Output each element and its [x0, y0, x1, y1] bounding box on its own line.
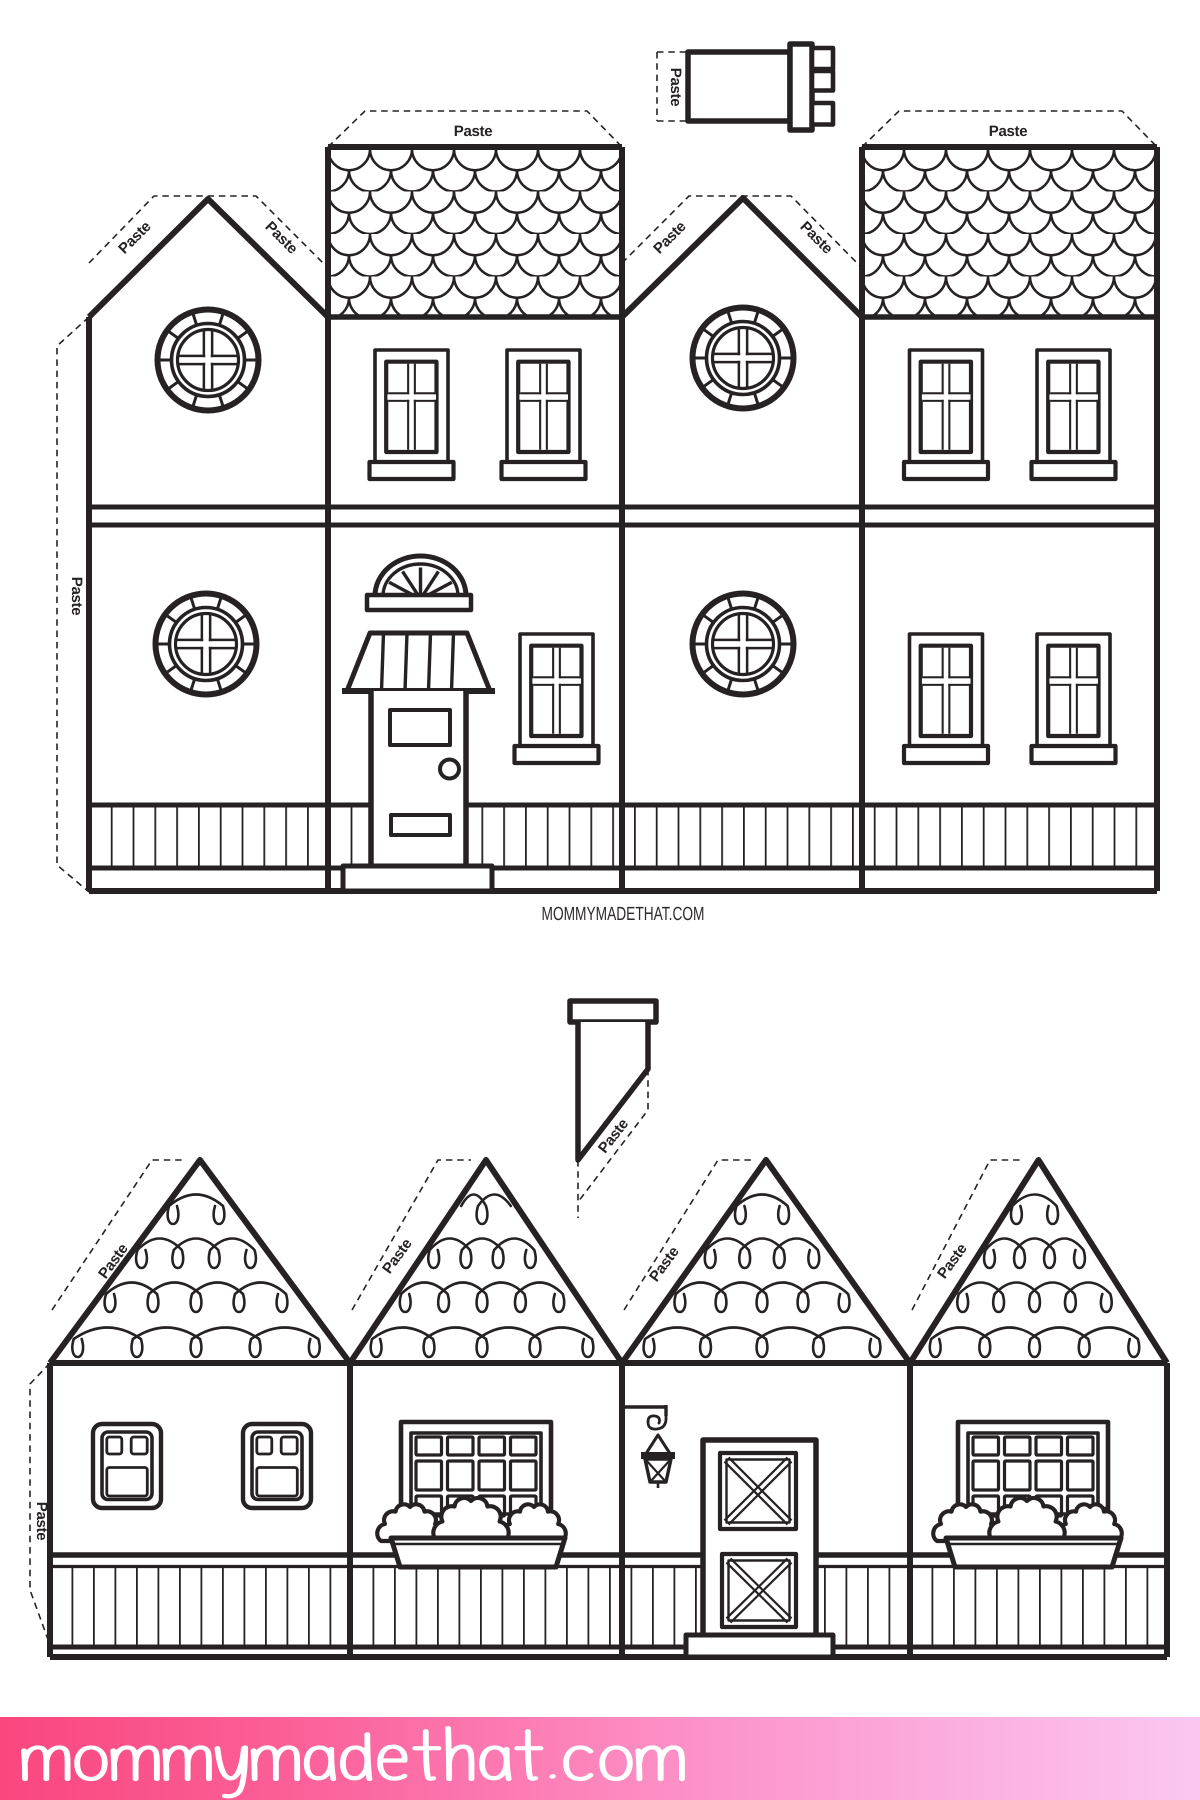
svg-text:Paste: Paste: [989, 123, 1028, 140]
svg-text:Paste: Paste: [454, 123, 493, 140]
svg-text:MOMMYMADETHAT.COM: MOMMYMADETHAT.COM: [542, 904, 705, 925]
svg-text:Paste: Paste: [667, 68, 684, 107]
svg-text:Paste: Paste: [68, 577, 85, 616]
